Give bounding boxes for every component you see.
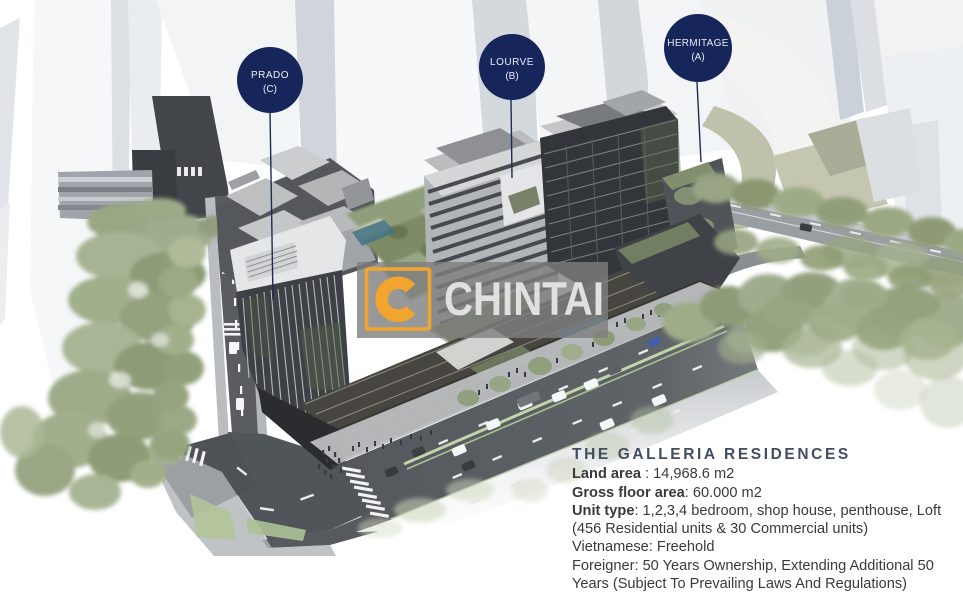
svg-text:(B): (B) [505, 71, 518, 82]
svg-text:HERMITAGE: HERMITAGE [667, 38, 728, 49]
svg-text:CHINTAI: CHINTAI [444, 272, 604, 325]
svg-text:(C): (C) [263, 84, 277, 95]
svg-text:LOURVE: LOURVE [490, 57, 534, 68]
svg-text:(A): (A) [691, 52, 704, 63]
svg-text:PRADO: PRADO [251, 70, 289, 81]
